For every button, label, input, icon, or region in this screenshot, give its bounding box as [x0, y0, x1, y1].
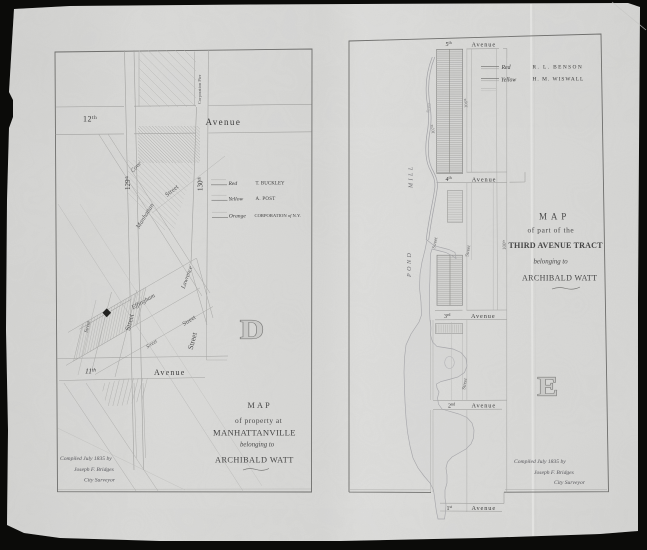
svg-text:ARCHIBALD WATT: ARCHIBALD WATT [522, 274, 597, 283]
svg-text:MAP: MAP [248, 401, 272, 410]
svg-text:Yellow: Yellow [229, 196, 244, 202]
svg-text:Avenue: Avenue [472, 505, 497, 512]
svg-text:Avenue: Avenue [206, 117, 242, 127]
svg-text:R. L. BENSON: R. L. BENSON [533, 64, 584, 70]
svg-text:ARCHIBALD WATT: ARCHIBALD WATT [215, 456, 294, 465]
svg-text:POND: POND [407, 251, 413, 278]
svg-text:Avenue: Avenue [472, 403, 497, 410]
svg-text:Avenue: Avenue [472, 176, 497, 183]
svg-text:Compiled July 1835 by: Compiled July 1835 by [514, 459, 566, 465]
svg-text:Red: Red [501, 65, 511, 71]
svg-text:belonging to: belonging to [240, 442, 275, 449]
svg-text:Joseph F. Bridges: Joseph F. Bridges [74, 467, 114, 473]
svg-text:Avenue: Avenue [472, 41, 497, 48]
svg-text:Corporation Pier: Corporation Pier [197, 74, 202, 104]
svg-text:Orange: Orange [229, 213, 247, 219]
svg-text:THIRD AVENUE TRACT: THIRD AVENUE TRACT [509, 241, 604, 250]
svg-text:Avenue: Avenue [154, 368, 186, 377]
svg-text:D: D [240, 315, 264, 345]
svg-text:Joseph F. Bridges: Joseph F. Bridges [534, 470, 574, 476]
svg-text:of property at: of property at [235, 416, 283, 425]
svg-text:Avenue: Avenue [471, 313, 496, 320]
svg-text:H. M. WISWALL: H. M. WISWALL [533, 76, 585, 82]
svg-text:A. POST: A. POST [256, 197, 276, 202]
svg-text:City Surveyor: City Surveyor [554, 480, 586, 486]
svg-text:of part of the: of part of the [528, 226, 575, 235]
svg-text:Yellow: Yellow [501, 78, 516, 84]
svg-text:Red: Red [228, 181, 238, 187]
svg-text:T. BUCKLEY: T. BUCKLEY [256, 182, 286, 187]
svg-text:CORPORATION of N.Y.: CORPORATION of N.Y. [255, 213, 302, 218]
svg-text:City Surveyor: City Surveyor [84, 478, 116, 484]
svg-text:MAP: MAP [539, 212, 570, 222]
svg-text:E: E [538, 372, 559, 402]
svg-text:MILL: MILL [409, 164, 415, 189]
svg-text:MANHATTANVILLE: MANHATTANVILLE [213, 428, 296, 438]
svg-text:belonging to: belonging to [534, 259, 569, 266]
svg-text:Compiled July 1835 by: Compiled July 1835 by [60, 456, 112, 462]
